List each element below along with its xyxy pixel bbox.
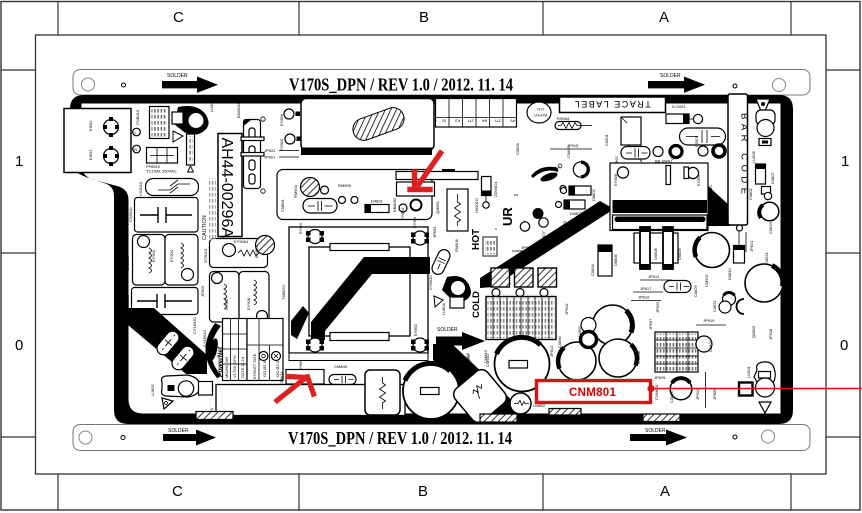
svg-text:JP617: JP617 [640, 286, 652, 291]
svg-text:JP803: JP803 [432, 226, 437, 238]
svg-text:CAUTION: CAUTION [202, 215, 208, 240]
svg-text:N: N [134, 147, 137, 152]
svg-text:SOLDER: SOLDER [168, 428, 189, 434]
svg-text:O.K: O.K [537, 107, 544, 112]
svg-text:EY903: EY903 [151, 249, 156, 262]
svg-text:JP825: JP825 [200, 285, 205, 297]
svg-text:JP919: JP919 [703, 318, 715, 323]
svg-text:K3: K3 [454, 119, 460, 124]
svg-text:C0834: C0834 [590, 263, 595, 276]
svg-text:CY8030: CY8030 [428, 275, 433, 290]
svg-text:BI-POT: BI-POT [533, 113, 547, 118]
svg-text:CM806: CM806 [334, 364, 348, 369]
svg-text:C0823: C0823 [768, 221, 773, 234]
svg-text:NT8010: NT8010 [203, 248, 208, 263]
svg-text:JP602: JP602 [264, 148, 276, 153]
svg-text:COLD: COLD [471, 291, 482, 318]
svg-text:AH44-00296A: AH44-00296A [218, 138, 235, 239]
svg-text:SOLDER: SOLDER [645, 428, 666, 434]
svg-text:B4: B4 [481, 119, 487, 124]
svg-text:JP610: JP610 [564, 303, 569, 315]
svg-text:EY897: EY897 [696, 173, 701, 186]
svg-text:JP915: JP915 [567, 143, 579, 148]
svg-text:EY898: EY898 [613, 173, 618, 186]
svg-text:JP904: JP904 [521, 245, 533, 250]
svg-text:EYELET SIZE: EYELET SIZE [252, 353, 257, 379]
svg-text:RM904: RM904 [293, 184, 298, 198]
svg-text:B: B [419, 9, 429, 26]
svg-text:H0501O: H0501O [474, 198, 479, 213]
svg-text:C0802: C0802 [748, 187, 753, 200]
svg-text:TRACE LABEL: TRACE LABEL [573, 99, 651, 109]
svg-text:CY18020: CY18020 [192, 317, 197, 334]
svg-text:D0803: D0803 [570, 211, 583, 216]
svg-text:EY895: EY895 [254, 245, 259, 258]
svg-text:UR: UR [500, 207, 515, 226]
svg-text:LU503: LU503 [209, 99, 214, 112]
svg-text:us: us [514, 192, 518, 197]
svg-text:EY9t3: EY9t3 [298, 222, 303, 234]
svg-text:CNM801: CNM801 [654, 383, 659, 400]
svg-text:BB8002: BB8002 [392, 197, 397, 212]
svg-text:BAR CODE: BAR CODE [739, 113, 750, 199]
svg-text:IS: IS [442, 119, 446, 124]
svg-text:D0810: D0810 [727, 267, 732, 280]
svg-text:MODEL NO: MODEL NO [224, 357, 229, 378]
svg-text:2TI: 2TI [495, 119, 501, 124]
svg-text:0: 0 [840, 337, 848, 354]
svg-text:JP607: JP607 [648, 318, 653, 330]
svg-text:RS064: RS064 [557, 116, 570, 121]
svg-text:CM921: CM921 [764, 251, 769, 265]
svg-text:TM8010: TM8010 [708, 185, 713, 200]
svg-text:D0807: D0807 [770, 171, 775, 184]
svg-text:C0501: C0501 [604, 133, 609, 146]
svg-text:C0829: C0829 [708, 339, 713, 352]
svg-text:V170S_DPN: V170S_DPN [232, 355, 237, 378]
svg-text:DATE 11.14: DATE 11.14 [240, 356, 245, 378]
svg-text:c: c [495, 226, 497, 231]
svg-text:1TI: 1TI [468, 119, 474, 124]
svg-text:Q0803: Q0803 [751, 325, 756, 338]
svg-text:EY908: EY908 [246, 297, 251, 310]
svg-text:C: C [173, 9, 184, 26]
svg-text:SOLDER: SOLDER [660, 73, 681, 79]
svg-text:D0829: D0829 [677, 247, 682, 260]
svg-text:JP829: JP829 [562, 220, 567, 232]
svg-text:C0826: C0826 [693, 284, 698, 297]
svg-text:0: 0 [15, 337, 23, 354]
svg-text:V170S_DPN / REV 1.0 / 2012. 11: V170S_DPN / REV 1.0 / 2012. 11. 14 [289, 75, 513, 95]
svg-text:A: A [660, 483, 670, 500]
svg-text:JP614: JP614 [648, 274, 660, 279]
svg-text:V170S_DPN / REV 1.0 / 2012. 11: V170S_DPN / REV 1.0 / 2012. 11. 14 [288, 428, 512, 448]
svg-text:EY9064: EY9064 [234, 239, 249, 244]
svg-text:BD8010: BD8010 [236, 103, 241, 118]
svg-text:SOLDER: SOLDER [437, 327, 458, 333]
svg-text:LU802: LU802 [150, 383, 155, 396]
svg-text:QM801: QM801 [435, 200, 440, 214]
svg-text:JP612: JP612 [549, 345, 554, 357]
svg-text:C0890: C0890 [557, 335, 562, 348]
svg-text:D8806: D8806 [613, 253, 618, 266]
svg-text:TM8020: TM8020 [281, 285, 286, 300]
svg-text:LU601: LU601 [746, 365, 751, 378]
svg-text:C0829: C0829 [630, 317, 635, 330]
svg-text:D4801: D4801 [371, 199, 384, 204]
svg-text:R0501: R0501 [694, 134, 699, 147]
svg-text:T3.15AL 250VAC: T3.15AL 250VAC [146, 169, 177, 174]
svg-text:EI501: EI501 [88, 149, 93, 160]
svg-text:CM801: CM801 [280, 198, 285, 212]
svg-text:C0814: C0814 [669, 390, 674, 403]
svg-text:ZDW821: ZDW821 [493, 180, 498, 197]
svg-text:EY896: EY896 [279, 113, 284, 126]
svg-text:EY9t4: EY9t4 [412, 216, 417, 228]
svg-text:JP806: JP806 [712, 388, 717, 400]
svg-text:RM814: RM814 [373, 415, 387, 420]
svg-text:CM8020: CM8020 [125, 294, 130, 310]
svg-text:OO Ø1.6: OO Ø1.6 [262, 360, 267, 377]
svg-text:RM906: RM906 [454, 238, 459, 252]
svg-text:CNM801: CNM801 [569, 387, 616, 399]
svg-text:JP621: JP621 [749, 240, 754, 252]
svg-text:EY893: EY893 [279, 138, 284, 151]
svg-text:EI502: EI502 [88, 120, 93, 131]
svg-text:B: B [418, 483, 428, 500]
svg-text:CM809: CM809 [445, 346, 450, 360]
svg-text:EY892: EY892 [413, 323, 418, 336]
svg-text:EY894: EY894 [400, 207, 405, 220]
svg-text:CM907: CM907 [704, 273, 709, 287]
svg-text:CM810: CM810 [483, 349, 488, 363]
svg-text:4V: 4V [510, 119, 515, 124]
svg-text:1: 1 [841, 153, 849, 170]
svg-text:C: C [172, 483, 183, 500]
svg-text:JP601: JP601 [264, 155, 276, 160]
svg-text:RM813: RM813 [465, 352, 470, 366]
svg-text:HOT: HOT [471, 229, 482, 250]
svg-text:SOLDER: SOLDER [167, 73, 188, 79]
svg-text:D-S001: D-S001 [672, 104, 686, 109]
svg-text:JP625: JP625 [654, 375, 666, 380]
svg-text:A: A [659, 9, 669, 26]
svg-text:JP620: JP620 [655, 301, 660, 313]
svg-text:JP616: JP616 [638, 295, 650, 300]
svg-text:C0828: C0828 [515, 142, 520, 155]
svg-text:CM808: CM808 [636, 350, 641, 364]
svg-text:D8802: D8802 [591, 188, 596, 201]
svg-text:JP610: JP610 [695, 388, 700, 400]
svg-text:LX8010: LX8010 [125, 255, 130, 270]
svg-text:JP918: JP918 [768, 328, 773, 340]
svg-text:C0821: C0821 [712, 299, 717, 312]
svg-text:LU804: LU804 [441, 302, 446, 315]
svg-text:EY907: EY907 [224, 297, 229, 310]
svg-text:L0801: L0801 [577, 325, 582, 337]
svg-text:EY904: EY904 [169, 249, 174, 262]
svg-text:DM804: DM804 [279, 371, 284, 385]
svg-text:1: 1 [15, 153, 23, 170]
svg-text:VX8010: VX8010 [138, 181, 143, 196]
svg-text:RM905: RM905 [338, 183, 352, 188]
svg-text:LU605: LU605 [751, 150, 756, 163]
svg-text:D0808: D0808 [653, 247, 658, 260]
svg-text:CNB010: CNB010 [135, 109, 140, 125]
svg-text:CX8010: CX8010 [128, 207, 133, 222]
svg-text:C0827: C0827 [541, 230, 546, 243]
